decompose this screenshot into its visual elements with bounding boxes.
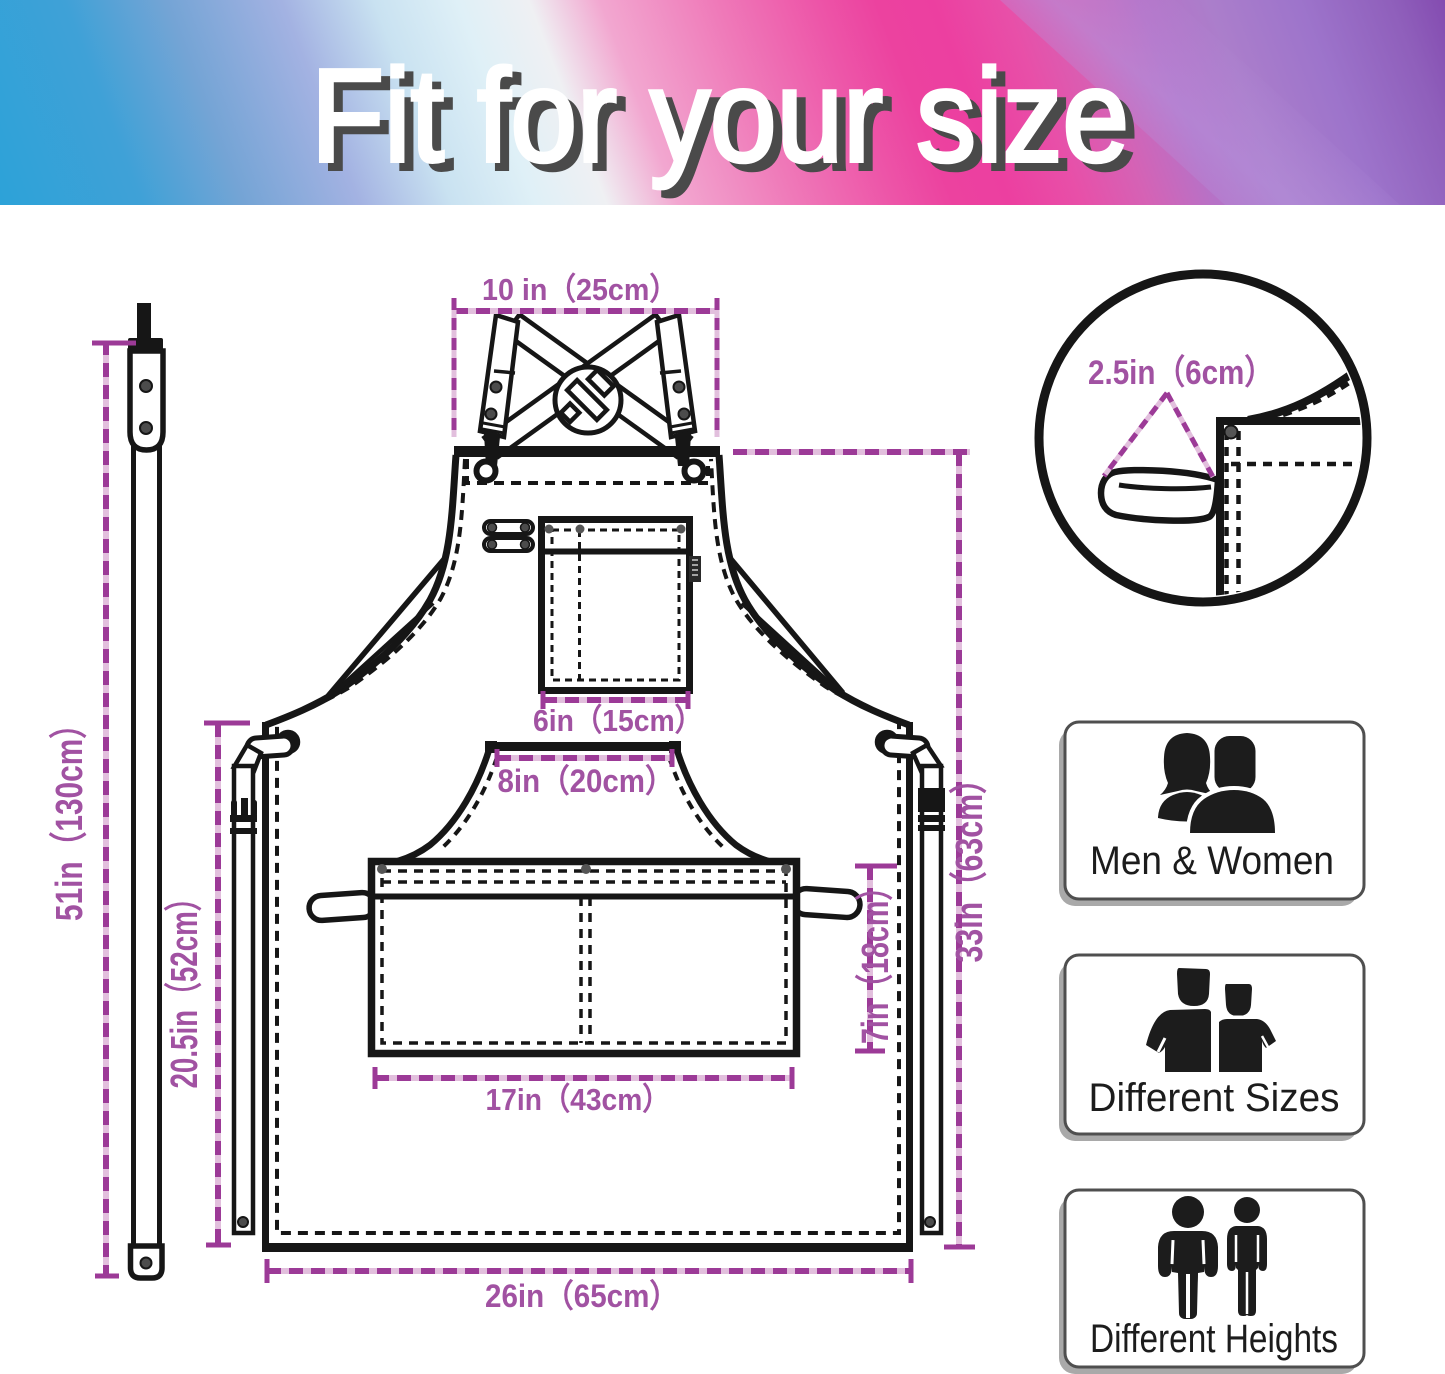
svg-text:7in（18cm）: 7in（18cm） xyxy=(855,872,897,1044)
svg-text:2.5in（6cm）: 2.5in（6cm） xyxy=(1088,353,1274,392)
svg-text:26in（65cm）: 26in（65cm） xyxy=(485,1278,679,1314)
svg-text:20.5in（52cm）: 20.5in（52cm） xyxy=(164,884,206,1089)
svg-text:Men & Women: Men & Women xyxy=(1090,839,1334,883)
svg-text:Different Heights: Different Heights xyxy=(1090,1317,1338,1361)
svg-text:10 in（25cm）: 10 in（25cm） xyxy=(482,272,678,307)
svg-text:Fit for your size: Fit for your size xyxy=(311,42,1129,189)
svg-text:51in（130cm）: 51in（130cm） xyxy=(49,709,91,921)
svg-text:Different Sizes: Different Sizes xyxy=(1089,1076,1340,1120)
svg-text:17in（43cm）: 17in（43cm） xyxy=(486,1082,671,1117)
svg-text:33in（63cm）: 33in（63cm） xyxy=(949,764,991,963)
svg-text:6in（15cm）: 6in（15cm） xyxy=(533,703,703,738)
svg-text:8in（20cm）: 8in（20cm） xyxy=(498,763,675,799)
